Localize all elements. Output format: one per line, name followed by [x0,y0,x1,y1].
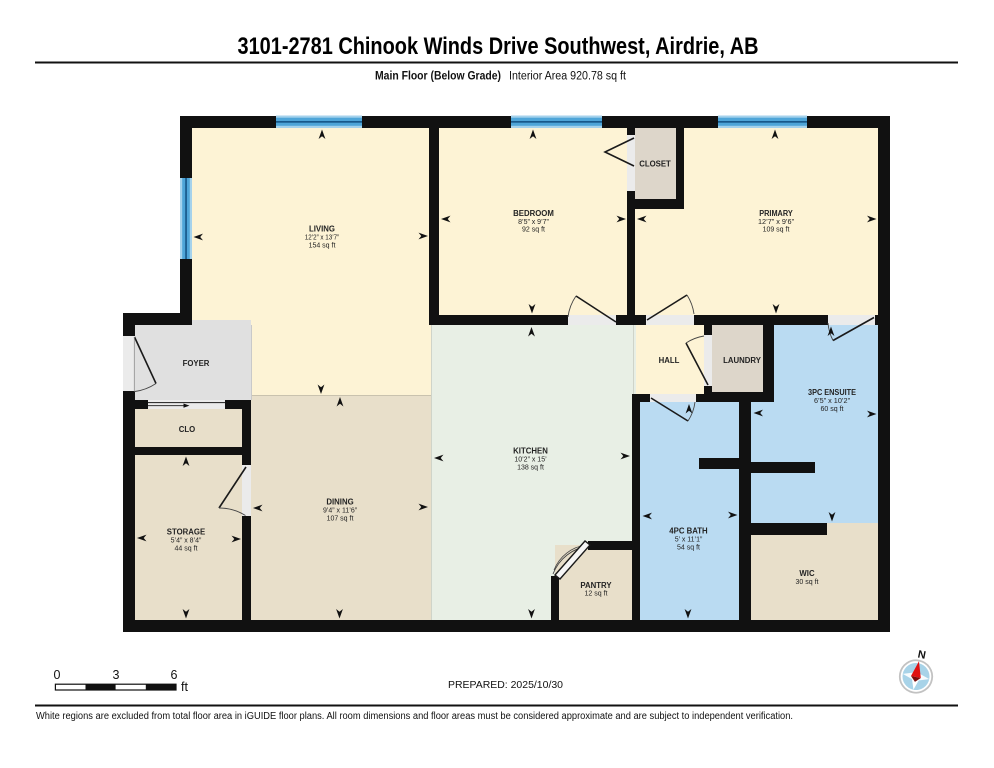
svg-text:6: 6 [171,668,178,682]
svg-text:60 sq ft: 60 sq ft [821,406,844,413]
svg-text:10’2” x 15’: 10’2” x 15’ [514,457,547,464]
svg-text:White regions are excluded fro: White regions are excluded from total fl… [36,711,793,722]
svg-text:54 sq ft: 54 sq ft [677,545,700,552]
svg-text:5’4” x 8’4”: 5’4” x 8’4” [171,538,202,545]
svg-text:Main Floor (Below Grade): Main Floor (Below Grade) [375,69,501,83]
svg-text:FOYER: FOYER [183,359,210,368]
svg-text:109 sq ft: 109 sq ft [763,227,790,234]
svg-text:0: 0 [54,668,61,682]
svg-text:138 sq ft: 138 sq ft [517,465,544,472]
svg-text:DINING: DINING [326,498,353,507]
svg-text:6’5” x 10’2”: 6’5” x 10’2” [814,398,851,405]
svg-text:Interior Area 920.78 sq ft: Interior Area 920.78 sq ft [509,71,627,83]
svg-text:5’ x 11’1”: 5’ x 11’1” [675,537,703,544]
svg-text:9’4” x 11’6”: 9’4” x 11’6” [323,508,358,515]
svg-text:3PC ENSUITE: 3PC ENSUITE [808,388,856,397]
svg-text:WIC: WIC [799,569,815,578]
svg-text:BEDROOM: BEDROOM [513,209,554,218]
svg-text:KITCHEN: KITCHEN [513,447,548,456]
svg-text:LIVING: LIVING [309,225,335,234]
svg-text:STORAGE: STORAGE [167,528,205,537]
svg-text:8’5” x 9’7”: 8’5” x 9’7” [518,219,549,226]
svg-text:44 sq ft: 44 sq ft [175,546,198,553]
svg-text:PRIMARY: PRIMARY [759,209,793,218]
svg-text:CLO: CLO [179,425,195,434]
svg-text:30 sq ft: 30 sq ft [796,579,819,586]
svg-text:12’2” x 13’7”: 12’2” x 13’7” [305,235,340,242]
svg-text:3: 3 [113,668,120,682]
svg-text:PREPARED: 2025/10/30: PREPARED: 2025/10/30 [448,679,563,691]
svg-text:92 sq ft: 92 sq ft [522,227,545,234]
svg-text:12’7” x 9’6”: 12’7” x 9’6” [758,219,795,226]
svg-text:107 sq ft: 107 sq ft [327,516,354,523]
svg-text:HALL: HALL [659,356,680,365]
svg-text:154 sq ft: 154 sq ft [309,243,336,250]
svg-text:LAUNDRY: LAUNDRY [723,356,762,365]
svg-text:PANTRY: PANTRY [580,581,612,590]
svg-text:CLOSET: CLOSET [639,160,671,169]
svg-text:4PC BATH: 4PC BATH [669,527,708,536]
svg-text:3101-2781 Chinook Winds Drive: 3101-2781 Chinook Winds Drive Southwest,… [238,33,759,60]
svg-text:12 sq ft: 12 sq ft [585,591,608,598]
svg-text:ft: ft [181,680,188,694]
